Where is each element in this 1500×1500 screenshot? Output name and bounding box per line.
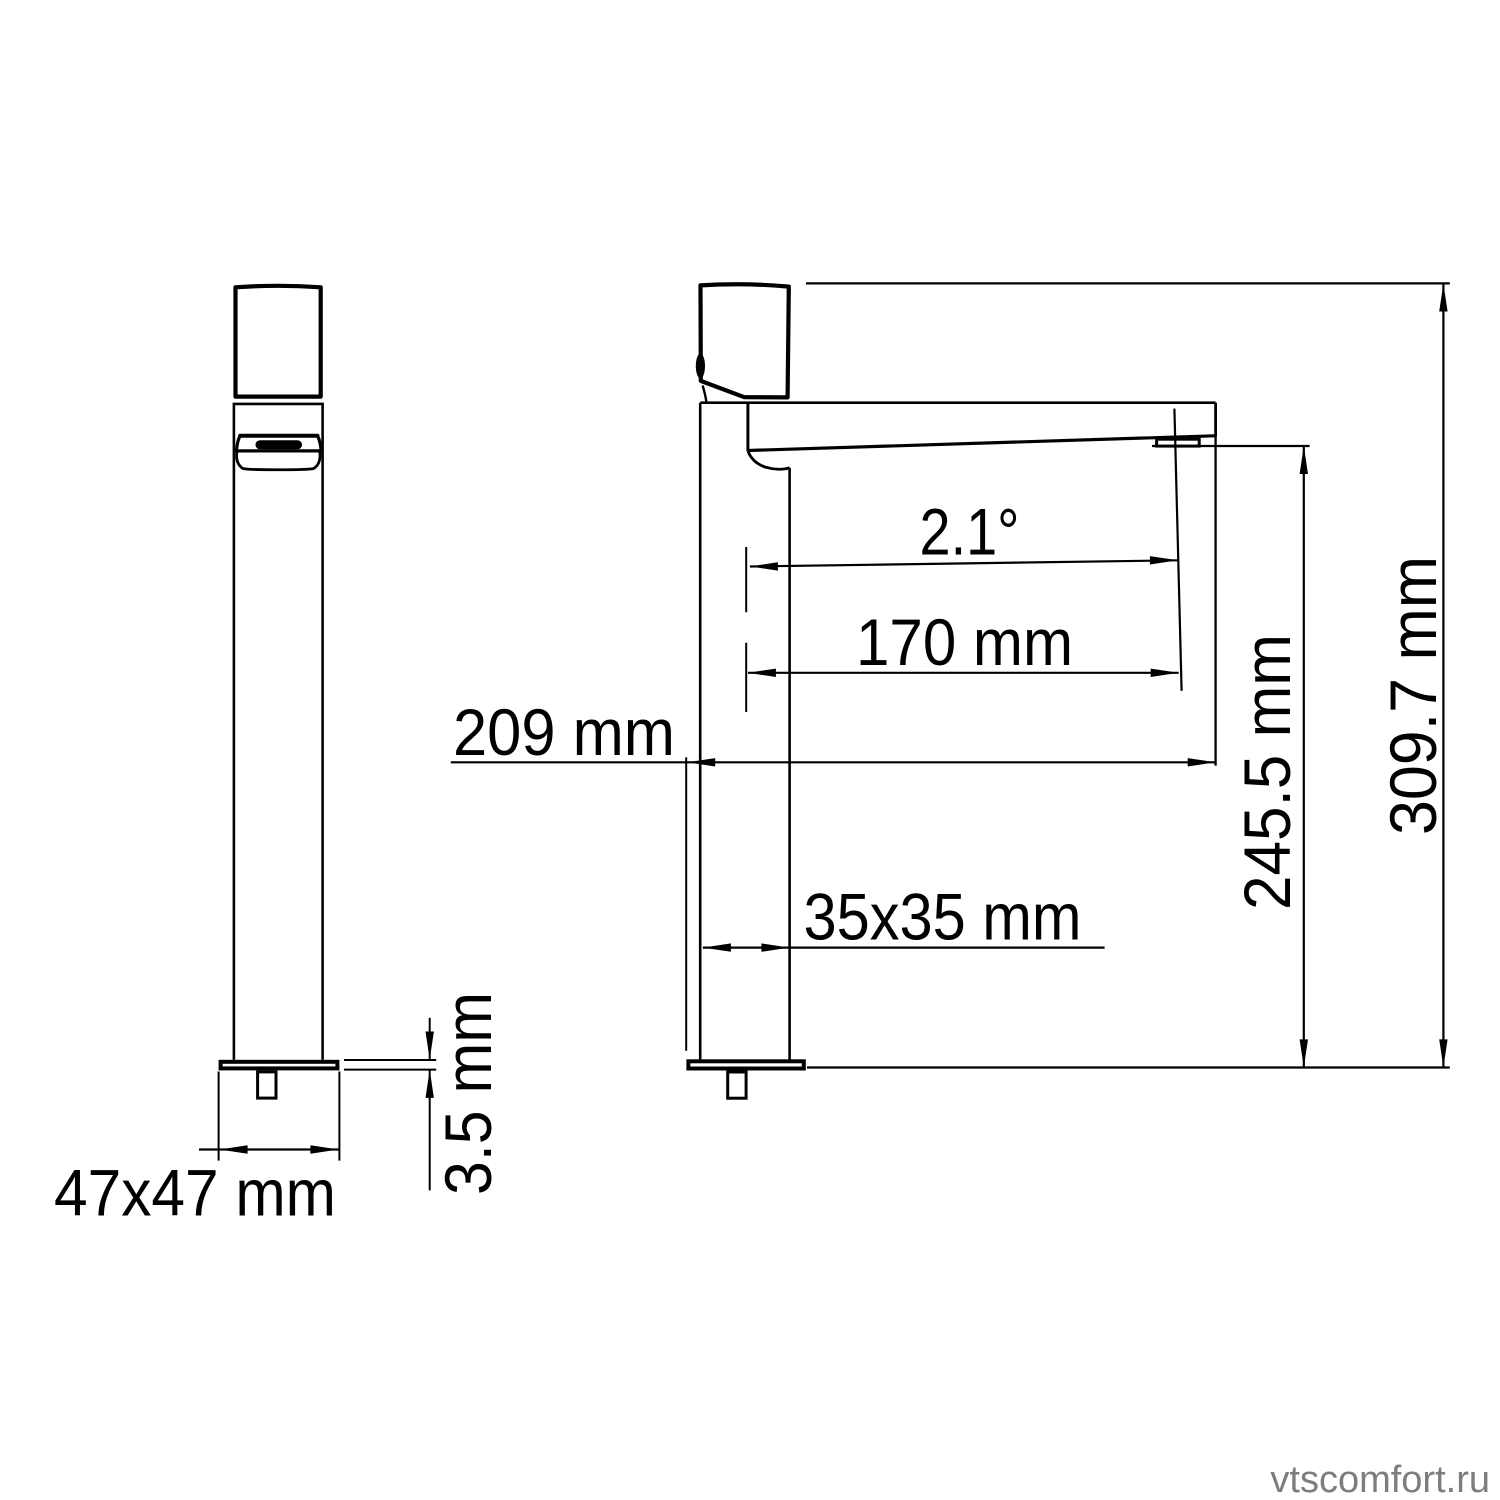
svg-text:47x47 mm: 47x47 mm [54,1156,336,1230]
svg-text:170 mm: 170 mm [856,605,1073,679]
svg-text:35x35 mm: 35x35 mm [804,879,1082,953]
svg-text:309.7 mm: 309.7 mm [1376,556,1450,835]
svg-text:2.1°: 2.1° [920,495,1020,569]
svg-text:209 mm: 209 mm [453,695,675,769]
svg-text:vtscomfort.ru: vtscomfort.ru [1270,1459,1490,1500]
svg-text:245.5 mm: 245.5 mm [1230,634,1304,910]
svg-text:3.5 mm: 3.5 mm [431,992,505,1195]
